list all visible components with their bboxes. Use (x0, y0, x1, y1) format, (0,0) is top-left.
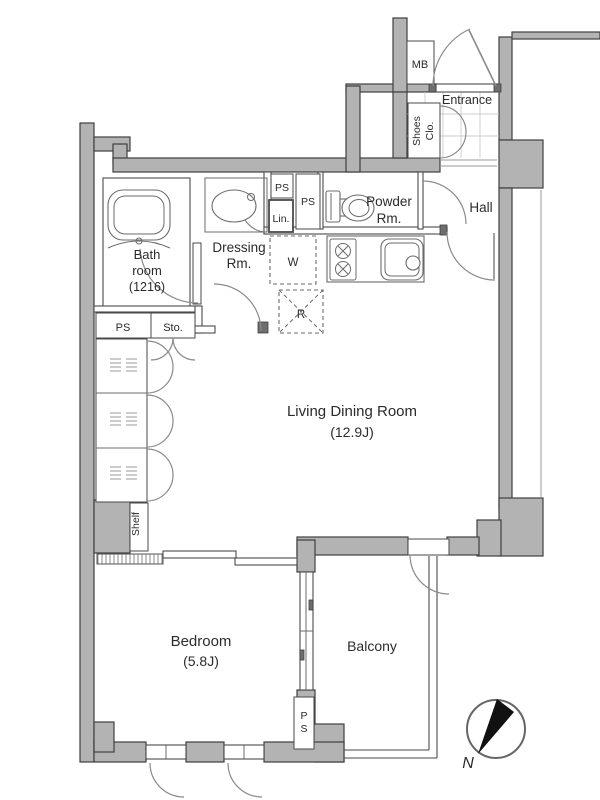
storage-door-arc (151, 338, 173, 360)
dressing-label-2: Rm. (227, 256, 252, 271)
pipe-space-column-label: PS (301, 196, 315, 208)
entrance-threshold (436, 84, 497, 92)
linen-label: Lin. (273, 213, 290, 225)
refrigerator-label: R (297, 309, 305, 321)
pipe-space-bottom-label-1: P (300, 710, 307, 722)
powder-label-1: Powder (366, 194, 412, 209)
entrance-door-leaf (469, 30, 496, 86)
shelf-label: Shelf (130, 512, 142, 536)
entrance-label: Entrance (442, 93, 492, 107)
folding-partition (97, 554, 163, 564)
hall-living-door-arc (447, 232, 495, 280)
sliding-door-panel (235, 558, 297, 565)
dressing-label-1: Dressing (212, 240, 265, 255)
floorplan-drawing: Living Dining Room (12.9J) Bedroom (5.8J… (0, 0, 600, 800)
compass-north-label: N (462, 755, 474, 772)
living-room-label: Living Dining Room (287, 403, 417, 420)
pipe-space-top-label: PS (275, 182, 289, 194)
bathtub (108, 190, 170, 248)
shoes-closet-label-1: Shoes (411, 116, 423, 146)
bedroom-label: Bedroom (171, 633, 232, 650)
storage-door-arc (173, 338, 195, 360)
hall-label: Hall (469, 200, 492, 215)
storage-label: Sto. (163, 322, 183, 334)
meter-box-label: MB (412, 59, 429, 71)
bedroom-size: (5.8J) (183, 653, 219, 669)
wash-basin (205, 178, 267, 232)
powder-label-2: Rm. (377, 211, 402, 226)
entrance-door-arc (433, 29, 470, 86)
living-room-size: (12.9J) (330, 424, 374, 440)
bathroom-door-leaf (193, 243, 201, 304)
pipe-space-bottom-label-2: S (300, 723, 307, 735)
pipe-space-left-label: PS (116, 322, 131, 334)
bathroom-label-2: room (132, 263, 162, 278)
floorplan-page: Living Dining Room (12.9J) Bedroom (5.8J… (0, 0, 600, 800)
dressing-door-arc (214, 284, 261, 331)
balcony-railing (344, 556, 437, 758)
washer-label: W (288, 257, 299, 269)
sliding-door-panel (163, 551, 236, 558)
bathroom-label-1: Bath (134, 247, 161, 262)
bathroom-size: (1216) (129, 280, 165, 294)
bedroom-wall-closets (96, 339, 173, 502)
powder-room-door-arc (423, 181, 466, 224)
kitchen-counter (327, 236, 424, 282)
kitchen-sink (381, 239, 423, 280)
shoes-closet-label-2: Clo. (424, 122, 436, 141)
balcony-label: Balcony (347, 638, 397, 654)
balcony-door-frame (408, 539, 449, 555)
compass (467, 699, 525, 758)
interior-partitions (94, 41, 501, 749)
